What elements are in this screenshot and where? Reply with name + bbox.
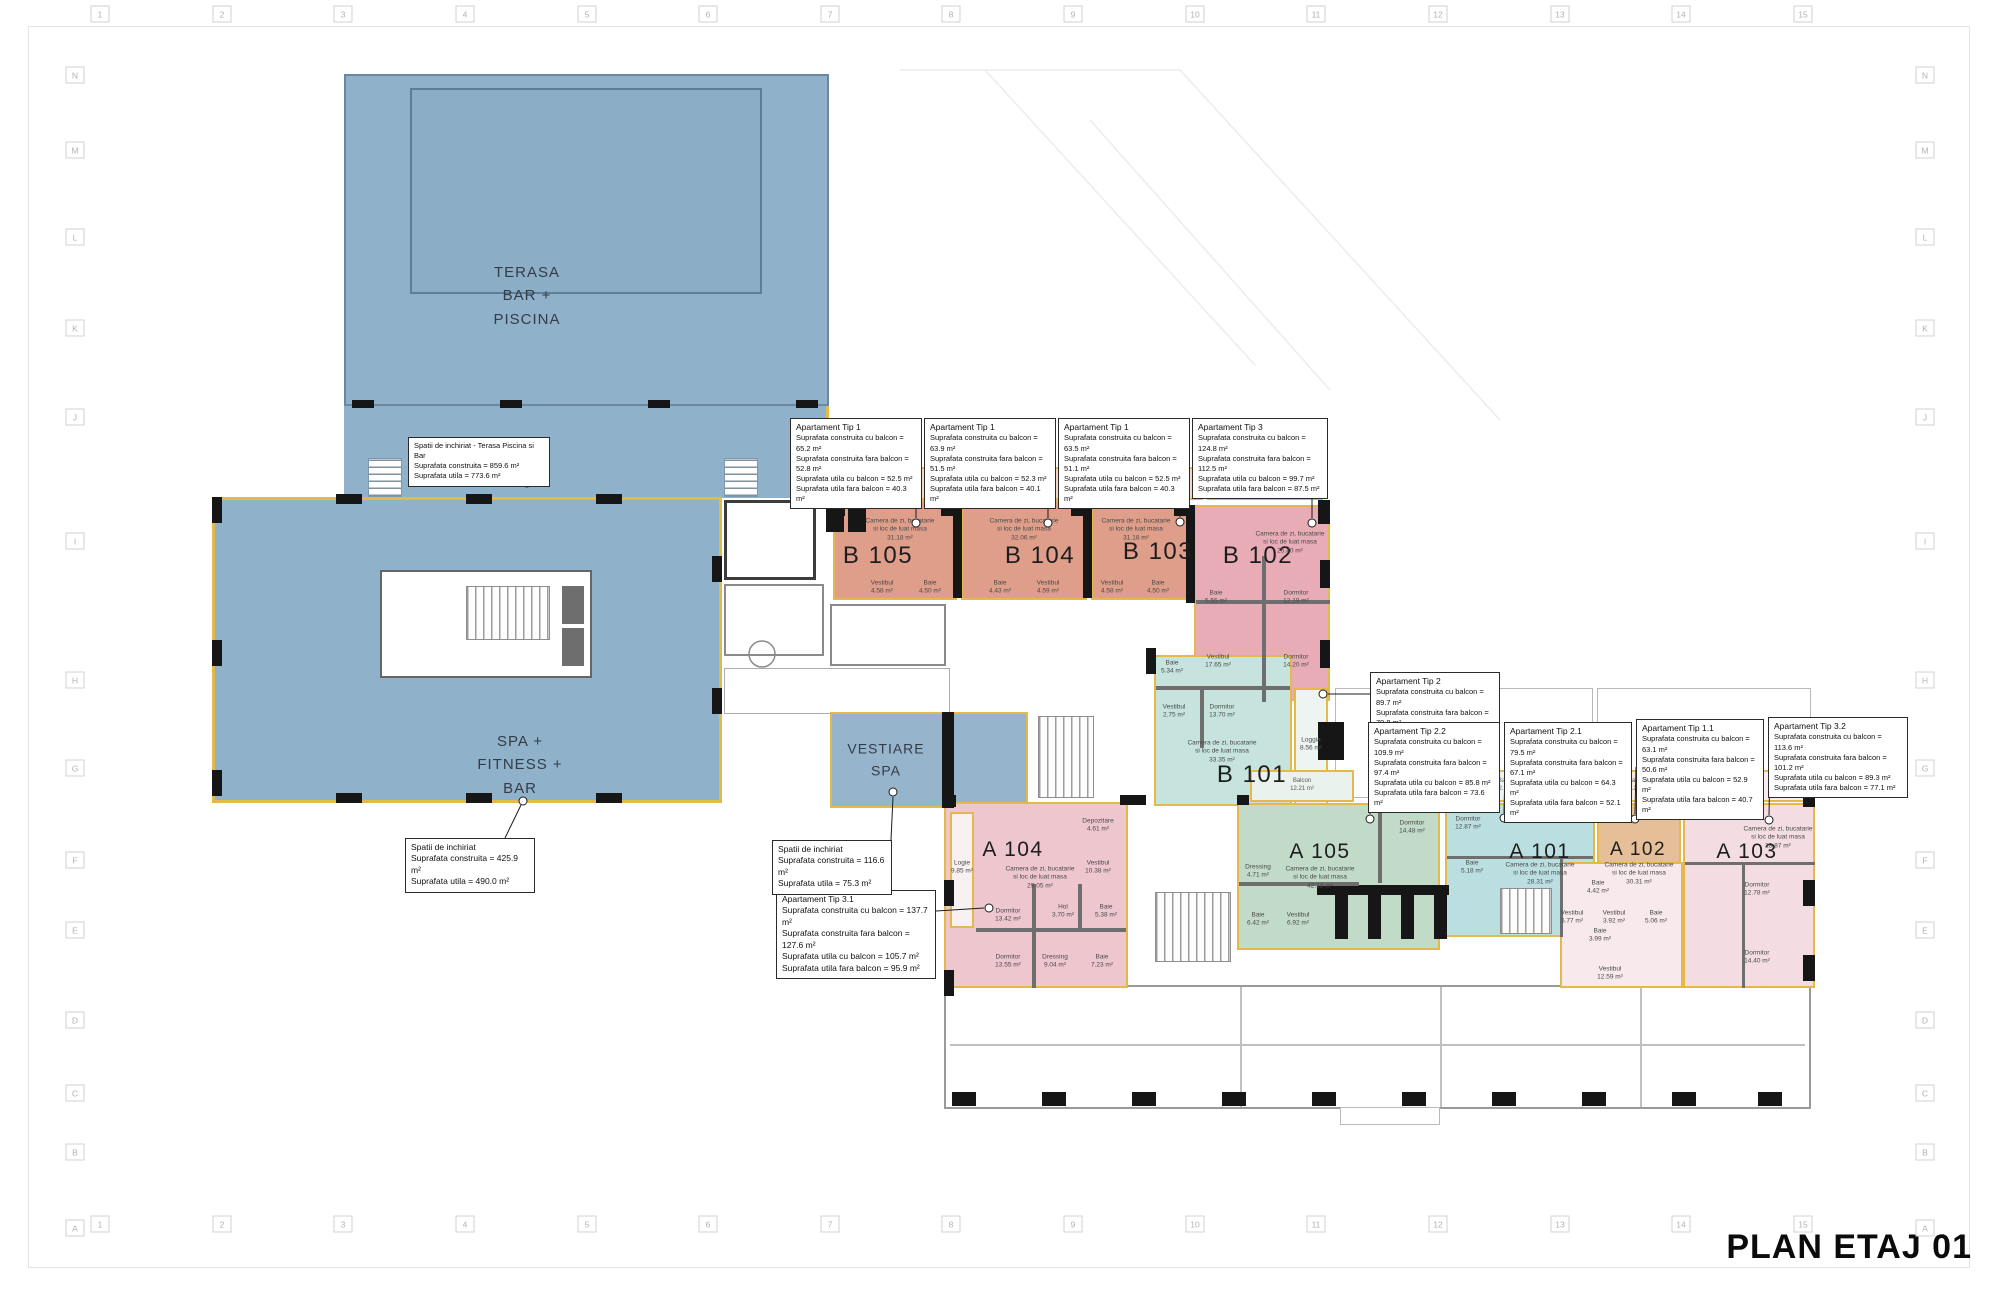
- wall-column: [712, 688, 722, 714]
- room-label: Camera de zi, bucatarie si loc de luat m…: [980, 517, 1068, 542]
- grid-row-marker-left: N: [66, 67, 85, 84]
- grid-column-marker-top: 13: [1551, 6, 1570, 23]
- room-label: Loggia 8.56 m²: [1296, 737, 1326, 754]
- note-tip1-b: Apartament Tip 1 Suprafata construita cu…: [924, 418, 1056, 509]
- wall-column: [1320, 560, 1330, 588]
- apartment-b104-code: B 104: [1005, 542, 1075, 570]
- partition-wall: [1032, 884, 1036, 988]
- room-label: Vestibul 3.92 m²: [1594, 910, 1634, 927]
- wall-column: [1335, 895, 1348, 939]
- room-label: Camera de zi, bucatarie si loc de luat m…: [1276, 865, 1364, 890]
- note-title: Apartament Tip 1: [930, 422, 1050, 433]
- grid-row-marker-left: C: [66, 1085, 85, 1102]
- a-core-stairs: [1038, 716, 1094, 798]
- room-label: Baie 4.43 m²: [982, 580, 1018, 597]
- note-body: Suprafata construita cu balcon = 63.1 m²…: [1642, 734, 1758, 815]
- grid-column-marker-bottom: 15: [1794, 1216, 1813, 1233]
- room-label: Vestibul 4.58 m²: [1092, 580, 1132, 597]
- room-label: Vestibul 2.75 m²: [1154, 704, 1194, 721]
- room-label: Camera de zi, bucatarie si loc de luat m…: [1734, 825, 1822, 850]
- wall-column: [1222, 1092, 1246, 1106]
- note-body: Spatii de inchiriat Suprafata construita…: [778, 844, 886, 890]
- grid-row-marker-right: C: [1916, 1085, 1935, 1102]
- grid-column-marker-top: 10: [1186, 6, 1205, 23]
- south-partition-2: [1440, 987, 1442, 1107]
- partition-wall: [1078, 884, 1082, 932]
- note-tip2-2: Apartament Tip 2.2 Suprafata construita …: [1368, 722, 1500, 813]
- note-vestiare-spa: Spatii de inchiriat Suprafata construita…: [772, 840, 892, 895]
- wall-column: [942, 712, 954, 808]
- grid-column-marker-bottom: 3: [334, 1216, 353, 1233]
- room-label: Vestibul 6.92 m²: [1277, 912, 1319, 929]
- wall-column: [952, 1092, 976, 1106]
- south-corridor-line: [950, 1044, 1805, 1046]
- pool-outline: [410, 88, 762, 294]
- note-tip1-1: Apartament Tip 1.1 Suprafata construita …: [1636, 719, 1764, 820]
- partition-wall: [1262, 556, 1266, 702]
- vestiare-zone-label: VESTIARE SPA: [847, 738, 924, 781]
- apartment-b105-code: B 105: [843, 542, 913, 570]
- wall-column: [712, 556, 722, 582]
- grid-column-marker-top: 6: [699, 6, 718, 23]
- wall-column: [1492, 1092, 1516, 1106]
- grid-row-marker-left: I: [66, 533, 85, 550]
- grid-row-marker-right: M: [1916, 142, 1935, 159]
- grid-row-marker-right: D: [1916, 1012, 1935, 1029]
- room-label: Baie 7.23 m²: [1085, 954, 1119, 971]
- grid-column-marker-top: 4: [456, 6, 475, 23]
- entry-core-room-2: [724, 584, 824, 656]
- wall-column: [1132, 1092, 1156, 1106]
- grid-column-marker-bottom: 11: [1307, 1216, 1326, 1233]
- grid-row-marker-right: K: [1916, 320, 1935, 337]
- note-body: Spatii de inchiriat - Terasa Piscina si …: [414, 441, 544, 482]
- grid-column-marker-top: 2: [213, 6, 232, 23]
- grid-column-marker-bottom: 8: [942, 1216, 961, 1233]
- note-tip3: Apartament Tip 3 Suprafata construita cu…: [1192, 418, 1328, 499]
- room-label: Dormitor 12.78 m²: [1735, 882, 1779, 899]
- room-label: Camera de zi, bucatarie si loc de luat m…: [996, 865, 1084, 890]
- room-label: Camera de zi, bucatarie si loc de luat m…: [1496, 861, 1584, 886]
- wall-column: [1312, 1092, 1336, 1106]
- apartment-a104-code: A 104: [982, 838, 1043, 862]
- room-label: Dormitor 13.42 m²: [986, 908, 1030, 925]
- wall-column: [648, 400, 670, 408]
- grid-row-marker-right: I: [1916, 533, 1935, 550]
- room-label: Dormitor 12.87 m²: [1446, 816, 1490, 833]
- wall-column: [1758, 1092, 1782, 1106]
- note-title: Apartament Tip 1: [1064, 422, 1184, 433]
- wall-column: [1434, 895, 1447, 939]
- note-body: Suprafata construita cu balcon = 79.5 m²…: [1510, 737, 1626, 818]
- grid-column-marker-top: 5: [578, 6, 597, 23]
- partition-wall: [562, 628, 584, 666]
- grid-row-marker-left: H: [66, 672, 85, 689]
- wall-column: [944, 880, 954, 906]
- grid-row-marker-right: B: [1916, 1144, 1935, 1161]
- grid-row-marker-left: L: [66, 229, 85, 246]
- room-label: Vestibul 4.59 m²: [1028, 580, 1068, 597]
- wall-column: [466, 494, 492, 504]
- note-body: Suprafata construita cu balcon = 65.2 m²…: [796, 433, 916, 504]
- wall-column: [1582, 1092, 1606, 1106]
- grid-row-marker-left: D: [66, 1012, 85, 1029]
- room-label: Dormitor 14.20 m²: [1274, 654, 1318, 671]
- room-label: Baie 5.38 m²: [1089, 904, 1123, 921]
- grid-row-marker-left: G: [66, 760, 85, 777]
- note-title: Apartament Tip 1: [796, 422, 916, 433]
- stairwell: [1500, 888, 1552, 934]
- terasa-stairs-left: [368, 458, 402, 497]
- room-label: Baie 6.42 m²: [1241, 912, 1275, 929]
- note-body: Suprafata construita cu balcon = 113.6 m…: [1774, 732, 1902, 793]
- grid-column-marker-bottom: 9: [1064, 1216, 1083, 1233]
- room-label: Camera de zi, bucatarie si loc de luat m…: [1092, 517, 1180, 542]
- grid-row-marker-right: A: [1916, 1220, 1935, 1237]
- room-label: Dormitor 13.55 m²: [986, 954, 1030, 971]
- wall-column: [596, 793, 622, 803]
- room-label: Baie 5.55 m²: [1198, 590, 1234, 607]
- note-body: Suprafata construita cu balcon = 124.8 m…: [1198, 433, 1322, 494]
- room-label: Hol 3.70 m²: [1048, 904, 1078, 921]
- note-tip3-2: Apartament Tip 3.2 Suprafata construita …: [1768, 717, 1908, 798]
- partition-wall: [562, 586, 584, 624]
- spa-core-stairs: [466, 586, 550, 640]
- grid-column-marker-top: 8: [942, 6, 961, 23]
- grid-column-marker-bottom: 2: [213, 1216, 232, 1233]
- grid-column-marker-bottom: 1: [91, 1216, 110, 1233]
- partition-wall: [1156, 686, 1290, 690]
- note-body: Spatii de inchiriat Suprafata construita…: [411, 842, 529, 888]
- wall-column: [336, 793, 362, 803]
- stairwell: [1155, 892, 1231, 962]
- room-label: Baie 4.42 m²: [1581, 880, 1615, 897]
- room-label: Baie 4.50 m²: [912, 580, 948, 597]
- wall-column: [500, 400, 522, 408]
- wall-column: [1402, 1092, 1426, 1106]
- note-spa-fitness: Spatii de inchiriat Suprafata construita…: [405, 838, 535, 893]
- room-label: Baie 3.99 m²: [1583, 928, 1617, 945]
- apartment-a102-code: A 102: [1610, 839, 1666, 861]
- grid-column-marker-top: 1: [91, 6, 110, 23]
- room-label: Vestibul 4.58 m²: [862, 580, 902, 597]
- grid-column-marker-top: 3: [334, 6, 353, 23]
- grid-column-marker-bottom: 14: [1672, 1216, 1691, 1233]
- note-title: Apartament Tip 3.2: [1774, 721, 1902, 732]
- wall-column: [796, 400, 818, 408]
- note-title: Apartament Tip 2.1: [1510, 726, 1626, 737]
- grid-column-marker-top: 9: [1064, 6, 1083, 23]
- note-body: Suprafata construita cu balcon = 63.9 m²…: [930, 433, 1050, 504]
- south-partition-1: [1240, 987, 1242, 1107]
- grid-column-marker-top: 11: [1307, 6, 1326, 23]
- note-title: Apartament Tip 2: [1376, 676, 1494, 687]
- grid-row-marker-left: J: [66, 409, 85, 426]
- partition-wall: [1378, 805, 1382, 883]
- wall-column: [1672, 1092, 1696, 1106]
- note-body: Suprafata construita cu balcon = 137.7 m…: [782, 905, 930, 974]
- floor-plan-canvas: TERASA BAR + PISCINA SPA + FITNESS + BAR…: [0, 0, 2000, 1294]
- room-label: Camera de zi, bucatarie si loc de luat m…: [856, 517, 944, 542]
- wall-column: [953, 498, 962, 598]
- partition-wall: [976, 928, 1126, 932]
- grid-column-marker-top: 14: [1672, 6, 1691, 23]
- grid-column-marker-bottom: 10: [1186, 1216, 1205, 1233]
- grid-row-marker-left: A: [66, 1220, 85, 1237]
- balcon-a105-label: Balcon 12.21 m²: [1272, 778, 1332, 794]
- note-body: Suprafata construita cu balcon = 109.9 m…: [1374, 737, 1494, 808]
- spa-zone-label: SPA + FITNESS + BAR: [477, 730, 562, 800]
- room-label: Baie 5.18 m²: [1455, 860, 1489, 877]
- room-label: Dormitor 12.19 m²: [1274, 590, 1318, 607]
- grid-column-marker-bottom: 4: [456, 1216, 475, 1233]
- note-tip3-1: Apartament Tip 3.1 Suprafata construita …: [776, 890, 936, 979]
- grid-row-marker-left: B: [66, 1144, 85, 1161]
- wall-column: [212, 640, 222, 666]
- room-label: Vestibul 12.59 m²: [1588, 966, 1632, 983]
- room-label: Baie 5.06 m²: [1639, 910, 1673, 927]
- room-label: Logie 9.85 m²: [950, 860, 974, 877]
- wall-column: [1120, 795, 1146, 805]
- grid-column-marker-bottom: 6: [699, 1216, 718, 1233]
- wall-column: [212, 497, 222, 523]
- note-terasa-bar: Spatii de inchiriat - Terasa Piscina si …: [408, 437, 550, 487]
- room-label: Vestibul 5.77 m²: [1551, 910, 1593, 927]
- note-title: Apartament Tip 3.1: [782, 894, 930, 905]
- wall-column: [1401, 895, 1414, 939]
- room-label: Depozitare 4.61 m²: [1074, 818, 1122, 835]
- room-label: Baie 5.34 m²: [1154, 660, 1190, 677]
- note-body: Suprafata construita cu balcon = 63.5 m²…: [1064, 433, 1184, 504]
- note-title: Apartament Tip 1.1: [1642, 723, 1758, 734]
- grid-column-marker-top: 15: [1794, 6, 1813, 23]
- grid-column-marker-bottom: 12: [1429, 1216, 1448, 1233]
- wall-column: [944, 970, 954, 996]
- room-label: Dormitor 14.48 m²: [1390, 820, 1434, 837]
- grid-column-marker-bottom: 5: [578, 1216, 597, 1233]
- room-label: Vestibul 10.38 m²: [1076, 860, 1120, 877]
- grid-row-marker-left: F: [66, 852, 85, 869]
- wall-column: [1803, 880, 1815, 906]
- wall-column: [1320, 640, 1330, 668]
- room-label: Camera de zi, bucatarie si loc de luat m…: [1178, 739, 1266, 764]
- room-label: Vestibul 17.65 m²: [1196, 654, 1240, 671]
- grid-column-marker-top: 7: [821, 6, 840, 23]
- plan-title: PLAN ETAJ 01: [1726, 1228, 1972, 1267]
- wall-column: [336, 494, 362, 504]
- grid-column-marker-top: 12: [1429, 6, 1448, 23]
- room-label: Dormitor 13.70 m²: [1200, 704, 1244, 721]
- wall-column: [1318, 500, 1330, 524]
- grid-row-marker-right: J: [1916, 409, 1935, 426]
- grid-column-marker-bottom: 13: [1551, 1216, 1570, 1233]
- wall-column: [1368, 895, 1381, 939]
- room-label: Dressing 4.71 m²: [1237, 864, 1279, 881]
- note-title: Apartament Tip 2.2: [1374, 726, 1494, 737]
- note-title: Apartament Tip 3: [1198, 422, 1322, 433]
- room-label: Dressing 9.04 m²: [1034, 954, 1076, 971]
- wall-column: [1237, 795, 1249, 805]
- grid-row-marker-right: F: [1916, 852, 1935, 869]
- grid-row-marker-right: L: [1916, 229, 1935, 246]
- wall-column: [352, 400, 374, 408]
- apartment-a105-code: A 105: [1289, 840, 1350, 864]
- terasa-stairs-right: [724, 458, 758, 497]
- wall-column: [596, 494, 622, 504]
- note-tip1-a: Apartament Tip 1 Suprafata construita cu…: [790, 418, 922, 509]
- entry-core-room-3: [830, 604, 946, 666]
- grid-row-marker-right: H: [1916, 672, 1935, 689]
- note-tip2-1: Apartament Tip 2.1 Suprafata construita …: [1504, 722, 1632, 823]
- wall-column: [212, 770, 222, 796]
- grid-row-marker-left: E: [66, 922, 85, 939]
- entry-corridor: [724, 668, 950, 714]
- note-tip1-c: Apartament Tip 1 Suprafata construita cu…: [1058, 418, 1190, 509]
- grid-row-marker-right: N: [1916, 67, 1935, 84]
- grid-row-marker-right: G: [1916, 760, 1935, 777]
- wall-column: [1803, 955, 1815, 981]
- wall-column: [1042, 1092, 1066, 1106]
- wall-column: [1083, 498, 1092, 598]
- terasa-zone-label: TERASA BAR + PISCINA: [493, 261, 560, 331]
- lower-floor-protrusion: [1340, 1107, 1440, 1125]
- grid-row-marker-left: M: [66, 142, 85, 159]
- room-label: Baie 4.50 m²: [1140, 580, 1176, 597]
- lower-floor-south-wing: [944, 985, 1811, 1109]
- grid-column-marker-bottom: 7: [821, 1216, 840, 1233]
- grid-row-marker-left: K: [66, 320, 85, 337]
- entry-core-room-1: [724, 500, 816, 580]
- south-partition-3: [1640, 987, 1642, 1107]
- room-label: Dormitor 14.40 m²: [1735, 950, 1779, 967]
- room-label: Camera de zi, bucatarie si loc de luat m…: [1246, 530, 1334, 555]
- grid-row-marker-right: E: [1916, 922, 1935, 939]
